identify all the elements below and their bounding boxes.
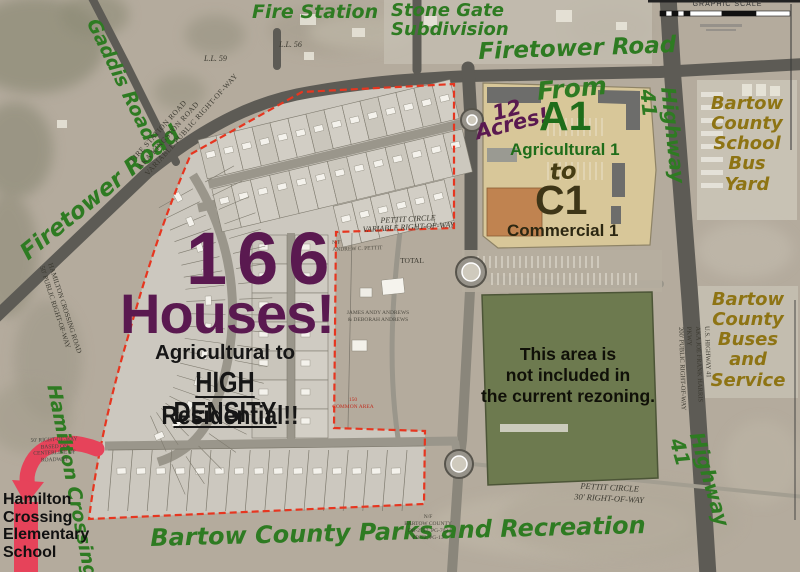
fire-station-label: Fire Station — [252, 3, 378, 23]
pettit-circle-row-note: PETTIT CIRCLE 30' RIGHT-OF-WAY — [567, 480, 652, 506]
centerline-note: 50' RIGHT-OF-WAY BASED ON CENTERLINE OF … — [28, 436, 81, 464]
not-included-note: This area is not included in the current… — [478, 344, 658, 407]
residential: Residential!! — [160, 402, 301, 429]
ll-56-note: L.L. 56 — [279, 41, 302, 49]
rezoning-map: Fire Station Stone Gate Subdivision Fire… — [0, 0, 800, 572]
houses-word: Houses! — [120, 286, 334, 342]
total-note: TOTAL — [390, 257, 434, 265]
parking-strip — [462, 250, 662, 292]
common-area-note: 150 COMMON AREA — [330, 397, 376, 410]
andrews-owner-note: JAMES ANDY ANDREWS & DEBORAH ANDREWS — [338, 310, 418, 324]
us-highway-41-note: U.S. HIGHWAY 41 AKA JOE FRANK HARRIS PKW… — [675, 326, 713, 417]
pettit-owner-note: N/F ANDREW C. PETTIT — [332, 238, 383, 253]
graphic-scale-title: GRAPHIC SCALE — [660, 1, 795, 8]
a1-code: A1 — [539, 96, 591, 137]
ll-59-note: L.L. 59 — [204, 55, 227, 63]
bus-yard-label: Bartow County School Bus Yard — [703, 94, 791, 195]
c1-code: C1 — [535, 180, 587, 221]
stone-gate-label: Stone Gate Subdivision — [391, 2, 509, 40]
c1-label: Commercial 1 — [507, 222, 619, 240]
a1-label: Agricultural 1 — [510, 141, 620, 159]
buses-service-label: Bartow County Buses and Service — [702, 290, 794, 391]
agricultural-to: Agricultural to — [146, 342, 304, 364]
school-label: Hamilton Crossing Elementary School — [3, 491, 89, 561]
county-parcel-note: N/F BARTOW COUNTY DB-2737, PG-703 PB-72,… — [398, 514, 458, 542]
